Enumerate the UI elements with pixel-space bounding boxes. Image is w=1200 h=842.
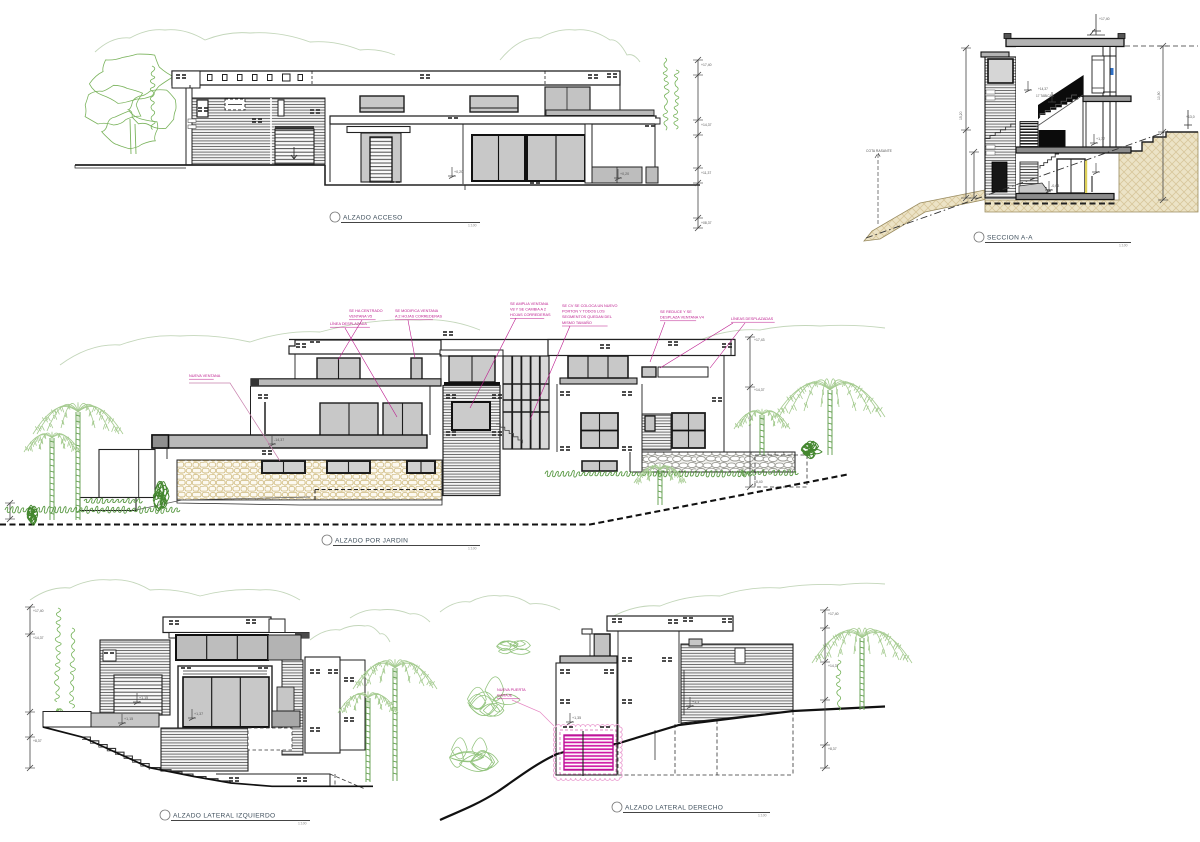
svg-text:+17,40: +17,40 (828, 612, 839, 616)
svg-text:+17,40: +17,40 (1099, 17, 1110, 21)
svg-text:1:100: 1:100 (468, 547, 477, 551)
svg-text:+14,37: +14,37 (701, 123, 712, 127)
svg-text:17 TABICAS: 17 TABICAS (1036, 94, 1054, 98)
svg-text:15,20: 15,20 (959, 111, 963, 120)
svg-text:+13,0: +13,0 (1186, 115, 1195, 119)
svg-text:+14,37: +14,37 (754, 388, 765, 392)
svg-text:LÍNEA DESPLAZADA: LÍNEA DESPLAZADA (330, 322, 367, 326)
svg-text:+14,37: +14,37 (828, 664, 839, 668)
svg-text:+1,15: +1,15 (139, 696, 148, 700)
svg-text:1:100: 1:100 (298, 822, 307, 826)
svg-text:+1,1: +1,1 (692, 700, 699, 704)
svg-text:10,90: 10,90 (1157, 91, 1161, 100)
svg-text:+8,40: +8,40 (754, 480, 763, 484)
svg-text:SE MODIFICA VENTANAA 2 HOJAS C: SE MODIFICA VENTANAA 2 HOJAS CORREDERAS (395, 309, 443, 319)
svg-text:1:100: 1:100 (468, 224, 477, 228)
svg-text:SECCION A-A: SECCION A-A (987, 235, 1033, 242)
svg-text:+08,37: +08,37 (701, 221, 712, 225)
svg-text:+0,20: +0,20 (620, 172, 629, 176)
svg-text:+17,40: +17,40 (33, 609, 44, 613)
svg-text:ALZADO LATERAL DERECHO: ALZADO LATERAL DERECHO (625, 805, 723, 812)
svg-text:+14,37: +14,37 (1038, 87, 1048, 91)
svg-text:+1,37: +1,37 (1096, 137, 1105, 141)
svg-text:+17,43: +17,43 (754, 338, 765, 342)
svg-text:ALZADO ACCESO: ALZADO ACCESO (343, 215, 403, 222)
svg-text:LÍNEAS DESPLAZADAS: LÍNEAS DESPLAZADAS (731, 317, 774, 321)
svg-text:1:100: 1:100 (758, 814, 767, 818)
svg-text:SE AMPLIA VENTANAV8 Y SE CAMBI: SE AMPLIA VENTANAV8 Y SE CAMBIA A 2HOJAS… (510, 302, 551, 317)
svg-text:+11,37: +11,37 (701, 171, 711, 175)
svg-text:NUEVA VENTANA: NUEVA VENTANA (189, 374, 221, 378)
svg-text:+1,15: +1,15 (124, 717, 133, 721)
svg-text:+8,37: +8,37 (33, 739, 42, 743)
svg-text:COTA RASANTE: COTA RASANTE (866, 149, 893, 153)
svg-text:-0,63: -0,63 (1051, 184, 1059, 188)
svg-text:ALZADO LATERAL IZQUIERDO: ALZADO LATERAL IZQUIERDO (173, 813, 275, 820)
svg-text:+14,37: +14,37 (33, 636, 44, 640)
svg-text:+0,20: +0,20 (454, 170, 463, 174)
svg-text:-14,37: -14,37 (274, 438, 284, 442)
svg-text:ALZADO POR JARDIN: ALZADO POR JARDIN (335, 538, 408, 545)
svg-text:+17,40: +17,40 (701, 63, 712, 67)
svg-text:+8,37: +8,37 (828, 747, 837, 751)
svg-text:1:100: 1:100 (1119, 244, 1128, 248)
svg-text:+1,37: +1,37 (194, 712, 203, 716)
svg-text:+1,35: +1,35 (572, 716, 581, 720)
